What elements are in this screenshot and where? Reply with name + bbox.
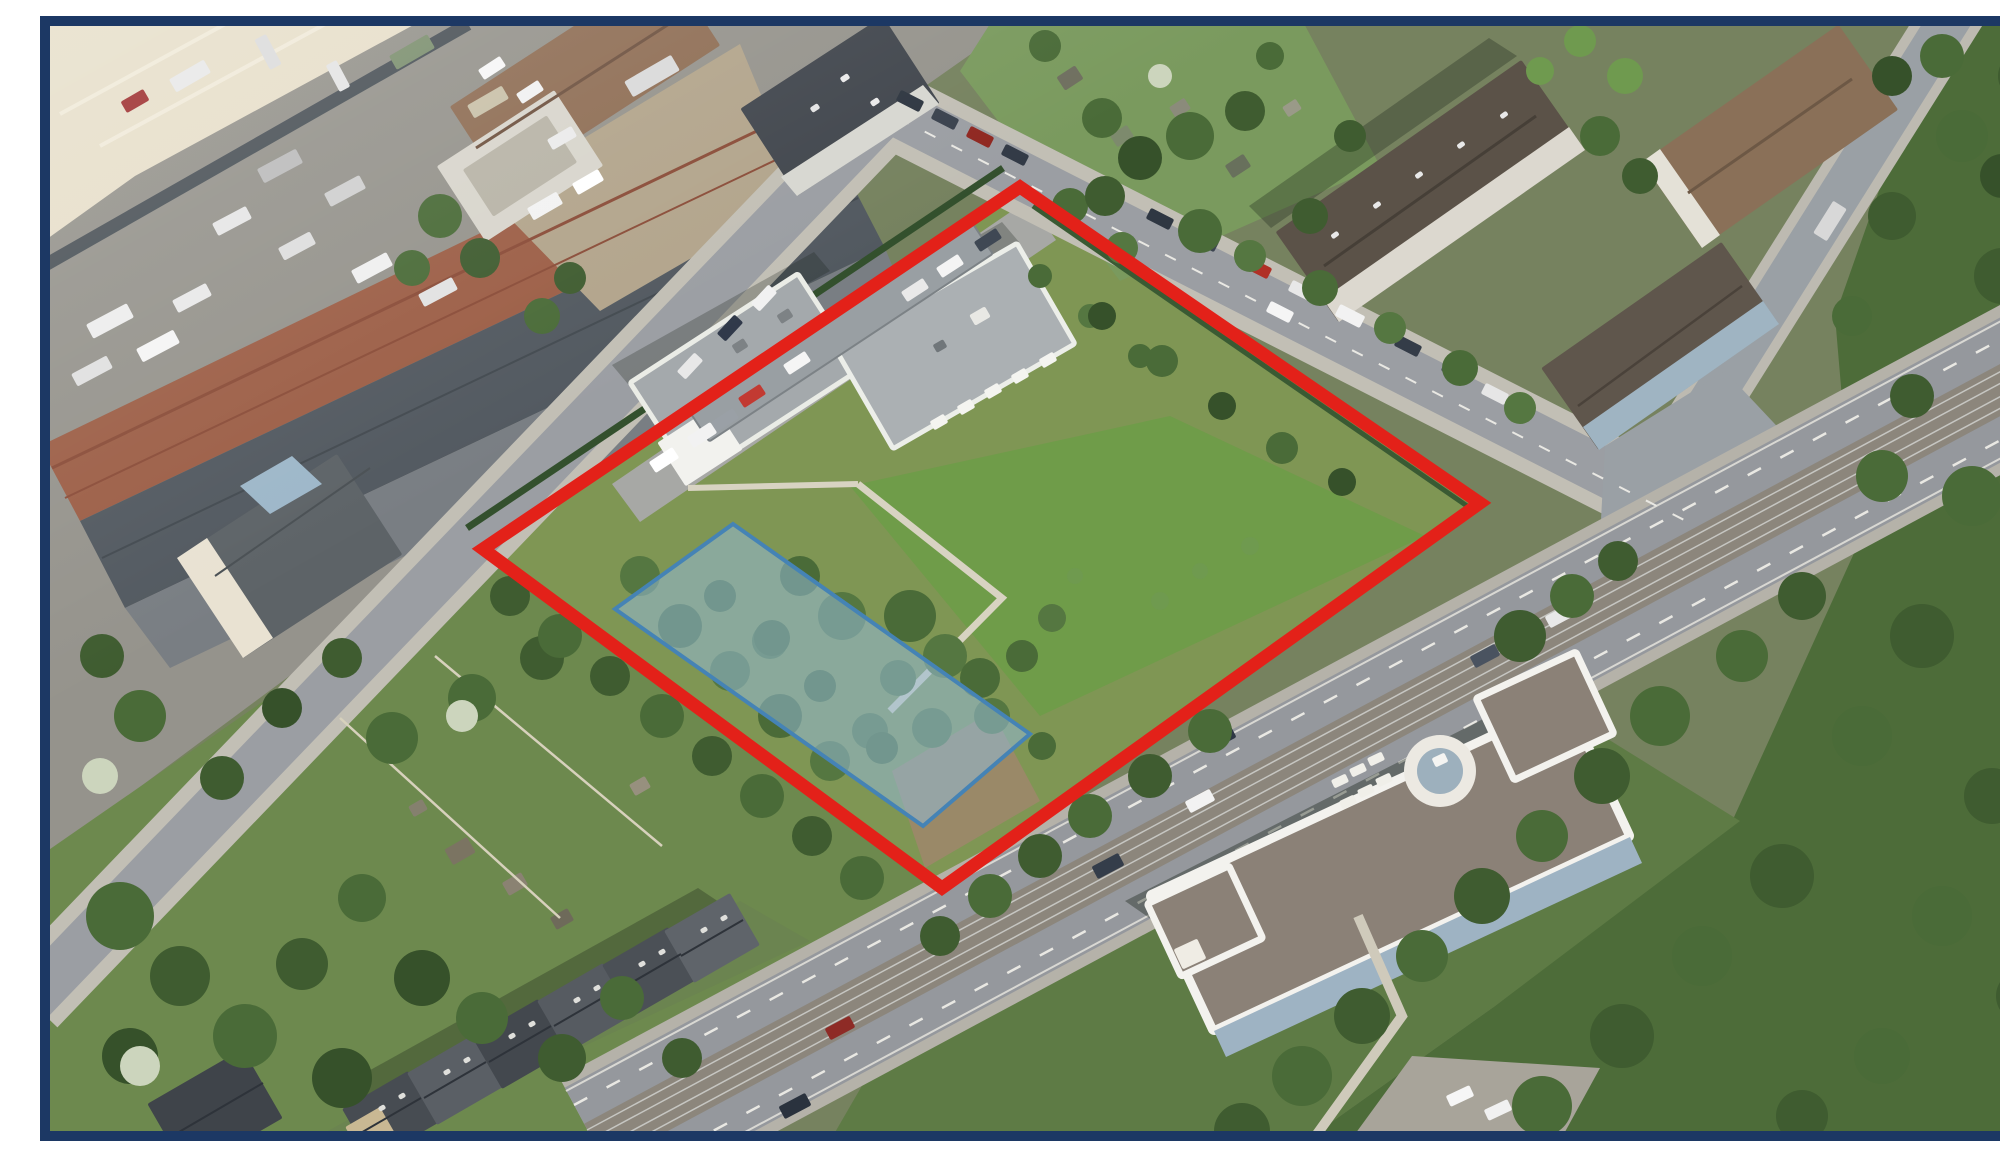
aerial-photo-figure — [40, 16, 2000, 1141]
aerial-photo-canvas — [40, 16, 2000, 1141]
